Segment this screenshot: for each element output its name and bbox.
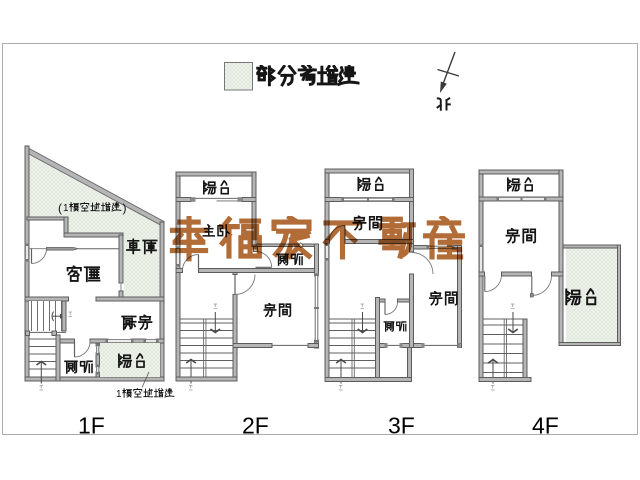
svg-text:1: 1 [63, 203, 69, 214]
svg-text:4F: 4F [532, 413, 559, 439]
svg-text:): ) [123, 201, 127, 215]
svg-text:1: 1 [116, 389, 122, 400]
svg-text:1F: 1F [78, 413, 105, 439]
svg-text:2F: 2F [242, 413, 269, 439]
svg-text:(: ( [58, 201, 62, 215]
svg-text:3F: 3F [388, 413, 415, 439]
